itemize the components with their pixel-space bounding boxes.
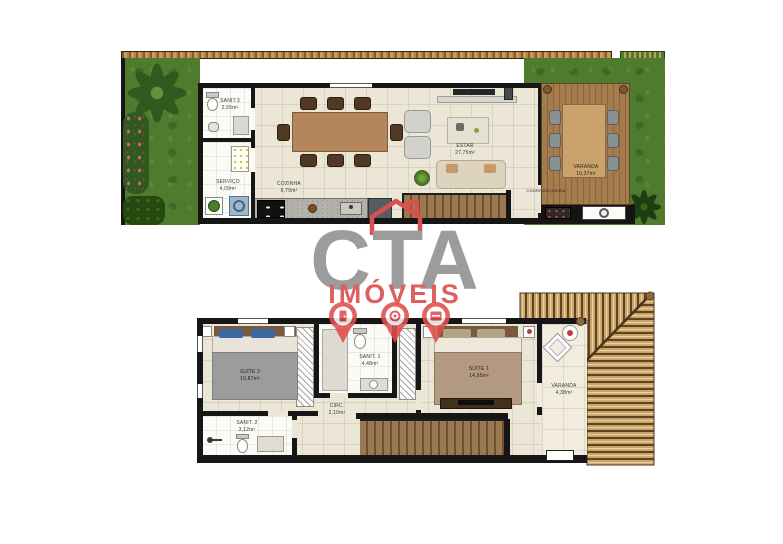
chair-icon	[549, 133, 561, 148]
wall-left	[198, 83, 203, 223]
door-opening	[330, 393, 348, 398]
stove-icon	[257, 200, 285, 218]
flower-bush	[123, 112, 149, 194]
map-pin-icon	[381, 302, 409, 343]
room-label-cozinha: COZINHA 6,79m²	[259, 181, 319, 194]
round-sink-icon	[599, 208, 609, 218]
chair-icon	[277, 124, 290, 141]
room-label-varanda2: VARANDA 4,38m²	[534, 383, 594, 396]
coffee-table	[447, 117, 489, 144]
sofa-cushion	[446, 164, 458, 173]
chair-icon	[354, 154, 371, 167]
room-label-churrasqueira: CHURRASQUEIRA	[506, 188, 586, 193]
chair-icon	[354, 97, 371, 110]
decor-icon	[474, 128, 479, 133]
wall-bottom	[197, 455, 587, 463]
floorplan-sheet: SANIT.3 2,55m² SERVIÇO 4,09m² COZINHA 6,…	[0, 0, 783, 544]
map-pin-icon	[422, 302, 450, 343]
door-opening	[251, 108, 255, 130]
room-area: 6,79m²	[259, 188, 319, 195]
window-icon	[197, 384, 203, 398]
wall-stairs-top	[356, 413, 508, 419]
room-name: CHURRASQUEIRA	[506, 188, 586, 193]
deck-post	[543, 85, 552, 94]
room-label-varanda: VARANDA 10,37m²	[556, 164, 616, 177]
map-pin-icon	[329, 302, 357, 343]
vanity-icon	[257, 436, 284, 452]
sofa-cushion	[484, 164, 496, 173]
room-label-estar: ESTAR 27,75m²	[435, 143, 495, 156]
fruit-bowl-icon	[308, 204, 317, 213]
door-opening	[268, 411, 288, 416]
deck-post	[576, 317, 585, 326]
staircase	[360, 419, 504, 455]
decor-icon	[456, 123, 464, 131]
wall-sanit3	[198, 138, 255, 142]
chair-icon	[300, 97, 317, 110]
room-area: 4,48m²	[340, 361, 400, 368]
wall-sanit1-bottom	[314, 393, 397, 398]
room-area: 2,55m²	[205, 105, 255, 112]
door-opening	[292, 420, 297, 438]
ac-niche	[546, 450, 574, 461]
tv-icon	[458, 400, 494, 405]
window-icon	[462, 318, 506, 324]
room-label-sanit3: SANIT.3 2,55m²	[205, 98, 255, 111]
pillow	[477, 329, 505, 338]
room-label-servico: SERVIÇO 4,09m²	[203, 179, 253, 192]
room-area: 27,75m²	[435, 150, 495, 157]
door-opening	[416, 390, 421, 410]
room-label-circ: CIRC. 2,10m²	[307, 403, 367, 416]
toilet-icon	[237, 439, 248, 453]
tv-icon	[453, 89, 495, 95]
wardrobe	[296, 327, 314, 407]
door-opening	[251, 148, 255, 172]
room-area: 4,09m²	[203, 186, 253, 193]
room-label-sanit2: SANIT. 2 3,12m²	[217, 420, 277, 433]
plant-icon	[414, 170, 430, 186]
washer-icon	[233, 200, 245, 212]
pillow	[251, 329, 275, 338]
vase-icon	[527, 329, 532, 334]
sink-icon	[208, 122, 219, 132]
room-area: 10,87m²	[220, 376, 280, 383]
room-label-suite1: SUÍTE 1 14,95m²	[449, 366, 509, 379]
chair-icon	[607, 133, 619, 148]
cabinet-icon	[231, 146, 249, 172]
nightstand	[284, 326, 295, 337]
sink-icon	[369, 380, 378, 389]
shelf-icon	[233, 116, 249, 135]
armchair-icon	[404, 110, 431, 133]
chair-icon	[549, 110, 561, 125]
wall-stairs-end	[504, 419, 510, 455]
room-label-sanit1: SANIT. 1 4,48m²	[340, 354, 400, 367]
picture-frame-icon	[504, 87, 513, 100]
grill-icon	[545, 207, 571, 219]
window-icon	[197, 336, 203, 352]
chair-icon	[390, 124, 403, 141]
chair-icon	[300, 154, 317, 167]
room-area: 4,38m²	[534, 390, 594, 397]
room-label-suite2: SUÍTE 2 10,87m²	[220, 369, 280, 382]
armchair-icon	[404, 136, 431, 159]
bush	[123, 196, 165, 225]
window-icon	[238, 318, 268, 324]
room-area: 10,37m²	[556, 171, 616, 178]
chair-icon	[327, 154, 344, 167]
shower-arm	[212, 439, 222, 441]
chair-icon	[327, 97, 344, 110]
window-icon	[330, 83, 372, 88]
laundry-sink-icon	[208, 200, 220, 212]
deck-post	[619, 85, 628, 94]
wall-suite2-sanit1	[314, 324, 319, 396]
flower-icon	[567, 330, 573, 336]
wall	[506, 190, 511, 220]
chair-icon	[607, 110, 619, 125]
room-area: 3,12m²	[217, 427, 277, 434]
faucet-icon	[349, 205, 353, 209]
nightstand	[202, 326, 212, 337]
room-area: 2,10m²	[307, 410, 367, 417]
pillow	[219, 329, 243, 338]
dining-table	[292, 112, 388, 152]
wall-suite2-bottom	[197, 411, 318, 416]
map-pin-icons	[325, 298, 453, 348]
room-area: 14,95m²	[449, 373, 509, 380]
